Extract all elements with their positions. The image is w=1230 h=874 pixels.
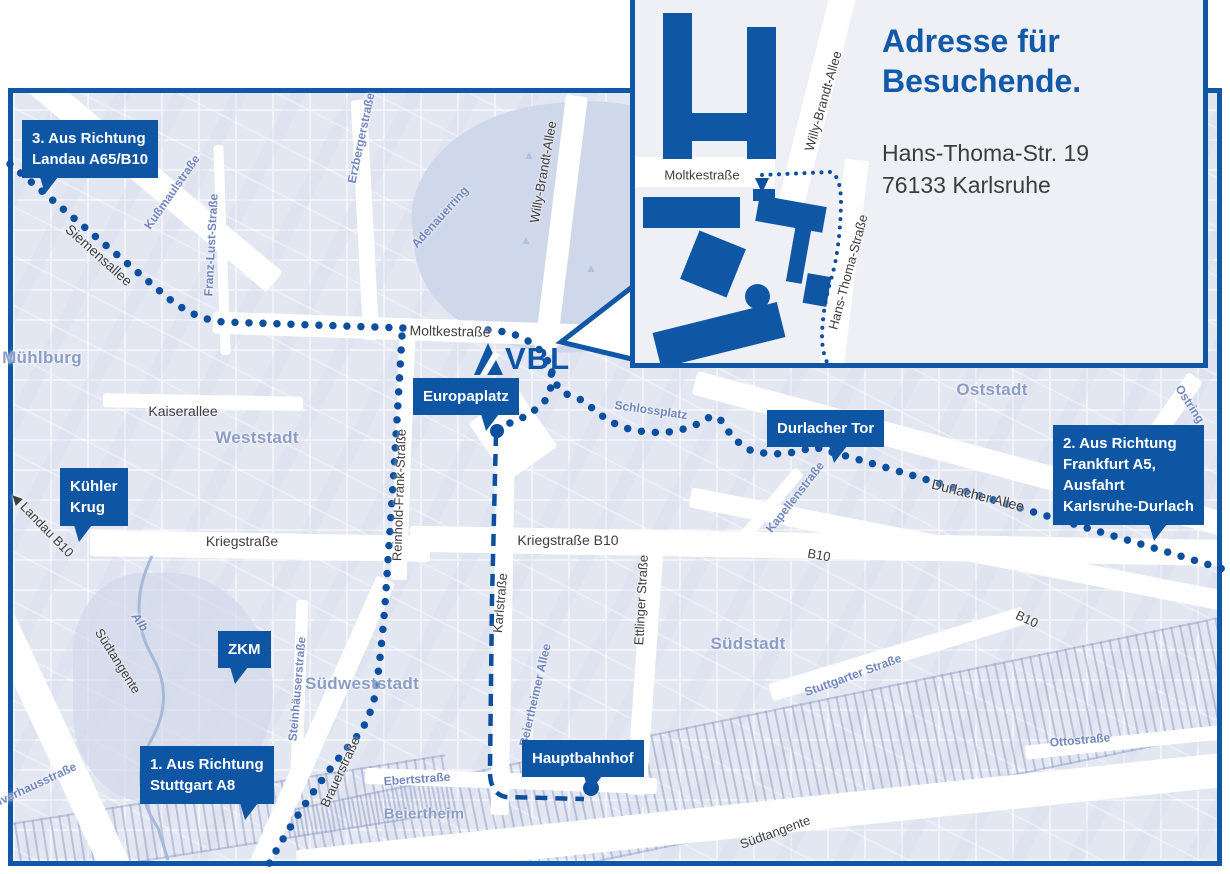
badge-hauptbahnhof: Hauptbahnhof [522,740,644,777]
badge-kuehler-krug-line: Krug [70,497,118,518]
badge-zkm-line: ZKM [228,639,261,660]
badge-route2-line: Karlsruhe-Durlach [1063,496,1194,517]
district-label-südstadt: Südstadt [710,634,785,654]
park-tree-icon: ▲ [523,148,535,162]
badge-route3-line: 3. Aus Richtung [32,128,148,149]
inset-title-line2: Besuchende. [882,61,1081,101]
badge-europaplatz-line: Europaplatz [423,386,509,407]
building-footprint [803,273,832,307]
visitor-address: Hans-Thoma-Str. 19 76133 Karlsruhe [882,137,1089,201]
inset-street-label-moltkestraße: Moltkestraße [664,168,739,183]
badge-durlacher-tor-line: Durlacher Tor [777,418,874,439]
badge-route3-line: Landau A65/B10 [32,149,148,170]
address-inset-panel: MoltkestraßeWilly-Brandt-AlleeHans-Thoma… [630,0,1208,368]
building-footprint [690,113,750,141]
badge-kuehler-krug: KühlerKrug [60,468,128,526]
vbl-logo-text: VBL [505,342,570,376]
address-street: Hans-Thoma-Str. 19 [882,137,1089,169]
street-label-kriegstraße-b10: Kriegstraße B10 [517,532,618,548]
district-label-beiertheim: Beiertheim [384,806,465,823]
inset-title: Adresse für Besuchende. [882,21,1081,101]
vbl-triangle-icon [473,342,505,376]
building-footprint [663,13,692,159]
vbl-logo: VBL [473,342,570,376]
badge-durlacher-tor: Durlacher Tor [767,410,884,447]
district-label-weststadt: Weststadt [215,428,299,448]
address-city: 76133 Karlsruhe [882,169,1089,201]
district-label-mühlburg: Mühlburg [2,348,82,368]
park-tree-icon: ▲ [520,233,532,247]
badge-route1: 1. Aus RichtungStuttgart A8 [140,746,274,804]
badge-route1-line: 1. Aus Richtung [150,754,264,775]
park-tree-icon: ▲ [585,261,597,275]
district-label-südweststadt: Südweststadt [305,674,419,694]
badge-route3: 3. Aus RichtungLandau A65/B10 [22,120,158,178]
building-footprint [643,197,740,228]
street-label-kaiserallee: Kaiserallee [148,403,217,419]
badge-kuehler-krug-line: Kühler [70,476,118,497]
karlsruhe-directions-map: ▲ ▲ ▲ SiemensalleeKußmaulstraßeFranz-Lus… [0,0,1230,874]
inset-title-line1: Adresse für [882,21,1081,61]
building-footprint [753,189,775,201]
badge-hauptbahnhof-line: Hauptbahnhof [532,748,634,769]
badge-route2: 2. Aus RichtungFrankfurt A5,AusfahrtKarl… [1053,425,1204,525]
building-footprint [653,302,786,368]
badge-europaplatz: Europaplatz [413,378,519,415]
badge-route2-line: 2. Aus Richtung [1063,433,1194,454]
badge-route2-line: Frankfurt A5, [1063,454,1194,475]
street-label-moltkestraße: Moltkestraße [409,322,490,339]
badge-zkm: ZKM [218,631,271,668]
district-label-oststadt: Oststadt [956,380,1027,400]
badge-route2-line: Ausfahrt [1063,475,1194,496]
building-footprint [680,231,746,298]
street-label-kriegstraße: Kriegstraße [206,533,278,549]
building-footprint [747,27,776,159]
badge-route1-line: Stuttgart A8 [150,775,264,796]
